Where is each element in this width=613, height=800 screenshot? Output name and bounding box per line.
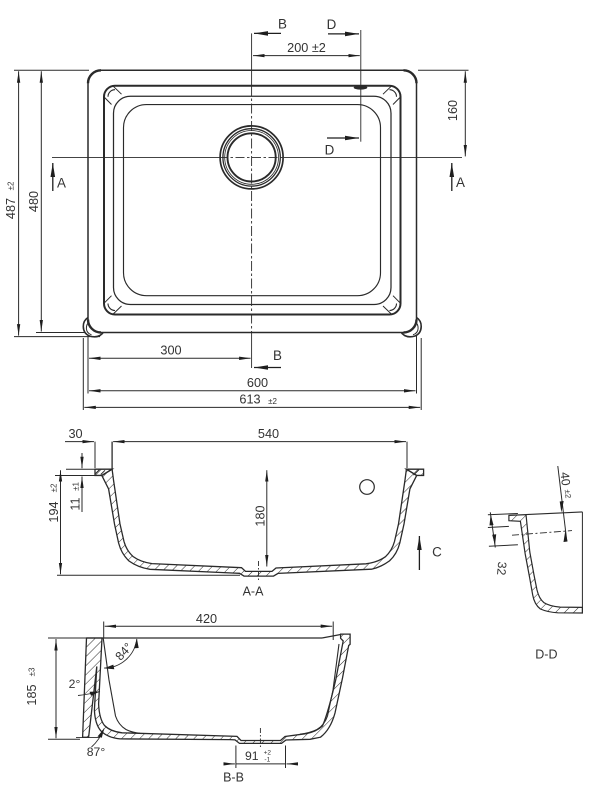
svg-text:±2: ±2: [268, 397, 277, 406]
svg-text:40: 40: [558, 471, 573, 486]
svg-text:87°: 87°: [87, 745, 106, 759]
svg-text:±2: ±2: [7, 181, 16, 190]
svg-text:D-D: D-D: [535, 648, 557, 662]
svg-text:160: 160: [446, 100, 460, 121]
svg-text:A: A: [57, 176, 66, 191]
svg-text:420: 420: [196, 612, 217, 626]
svg-text:±2: ±2: [50, 483, 59, 492]
svg-text:-1: -1: [264, 756, 270, 763]
svg-text:B: B: [273, 348, 282, 363]
svg-text:32: 32: [494, 561, 509, 576]
svg-text:480: 480: [27, 191, 41, 212]
svg-text:±1: ±1: [72, 482, 81, 491]
svg-text:±3: ±3: [28, 667, 37, 676]
svg-text:487: 487: [4, 198, 18, 219]
svg-text:185: 185: [25, 684, 39, 705]
svg-text:B-B: B-B: [223, 771, 244, 785]
svg-text:+2: +2: [264, 749, 272, 756]
svg-text:D: D: [327, 17, 337, 32]
svg-text:A-A: A-A: [243, 585, 265, 599]
svg-text:194: 194: [47, 501, 61, 522]
svg-text:30: 30: [68, 427, 82, 441]
svg-text:613: 613: [239, 393, 260, 407]
svg-text:540: 540: [258, 427, 279, 441]
svg-text:C: C: [432, 545, 442, 560]
svg-text:11: 11: [69, 497, 83, 510]
svg-text:300: 300: [160, 344, 181, 358]
svg-text:180: 180: [253, 505, 267, 526]
svg-text:±2: ±2: [563, 489, 573, 499]
svg-text:91: 91: [245, 749, 259, 763]
svg-text:600: 600: [247, 376, 268, 390]
svg-text:200 ±2: 200 ±2: [287, 41, 326, 55]
svg-text:D: D: [325, 143, 335, 158]
svg-text:A: A: [456, 175, 465, 190]
svg-text:B: B: [278, 17, 287, 32]
svg-text:2°: 2°: [69, 677, 81, 691]
